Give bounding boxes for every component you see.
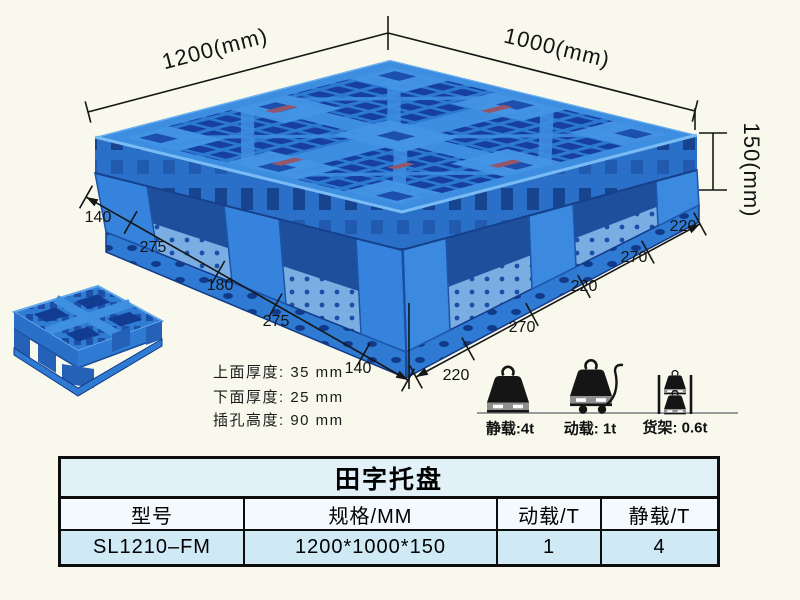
header-model: 型号 <box>61 499 245 529</box>
dim-label-height: 150(mm) <box>738 122 764 217</box>
weights-on-rack-icon <box>659 371 691 415</box>
cell-model: SL1210–FM <box>61 531 245 564</box>
static-load-label: 静载:4t <box>486 418 534 439</box>
spec-top-thickness: 上面厚度: 35 mm <box>213 361 344 382</box>
dim-right-3: 220 <box>571 278 598 296</box>
rack-load-label: 货架: 0.6t <box>642 417 707 438</box>
spec-table-title: 田字托盘 <box>61 459 717 499</box>
weight-on-trolley-icon <box>570 360 623 413</box>
spec-table-data-row: SL1210–FM 1200*1000*150 1 4 <box>61 531 717 564</box>
dimension-line-150 <box>699 133 727 190</box>
spec-table: 田字托盘 型号 规格/MM 动载/T 静载/T SL1210–FM 1200*1… <box>58 456 720 567</box>
dim-left-2: 275 <box>140 239 167 257</box>
dim-left-4: 275 <box>263 313 290 331</box>
spec-fork-height: 插孔高度: 90 mm <box>213 409 344 430</box>
dim-right-5: 220 <box>670 218 697 236</box>
header-static-load: 静载/T <box>602 499 717 529</box>
spec-bottom-thickness: 下面厚度: 25 mm <box>213 386 344 407</box>
main-pallet-illustration <box>95 60 699 378</box>
header-dynamic-load: 动载/T <box>498 499 602 529</box>
cell-dynamic-load: 1 <box>498 531 602 564</box>
dim-right-2: 270 <box>509 319 536 337</box>
header-size: 规格/MM <box>245 499 498 529</box>
spec-table-header-row: 型号 规格/MM 动载/T 静载/T <box>61 499 717 531</box>
load-capacity-icons <box>477 360 738 414</box>
dynamic-load-label: 动载: 1t <box>564 418 617 439</box>
product-sheet: 1200(mm) 1000(mm) 150(mm) 140 275 180 27… <box>0 0 800 600</box>
dim-right-4: 270 <box>621 249 648 267</box>
small-pallet-illustration <box>14 286 162 396</box>
cell-static-load: 4 <box>602 531 717 564</box>
weight-on-ground-icon <box>487 367 529 413</box>
dim-left-1: 140 <box>85 209 112 227</box>
dim-left-5: 140 <box>345 360 372 378</box>
cell-size: 1200*1000*150 <box>245 531 498 564</box>
dim-left-3: 180 <box>207 277 234 295</box>
dim-right-1: 220 <box>443 367 470 385</box>
